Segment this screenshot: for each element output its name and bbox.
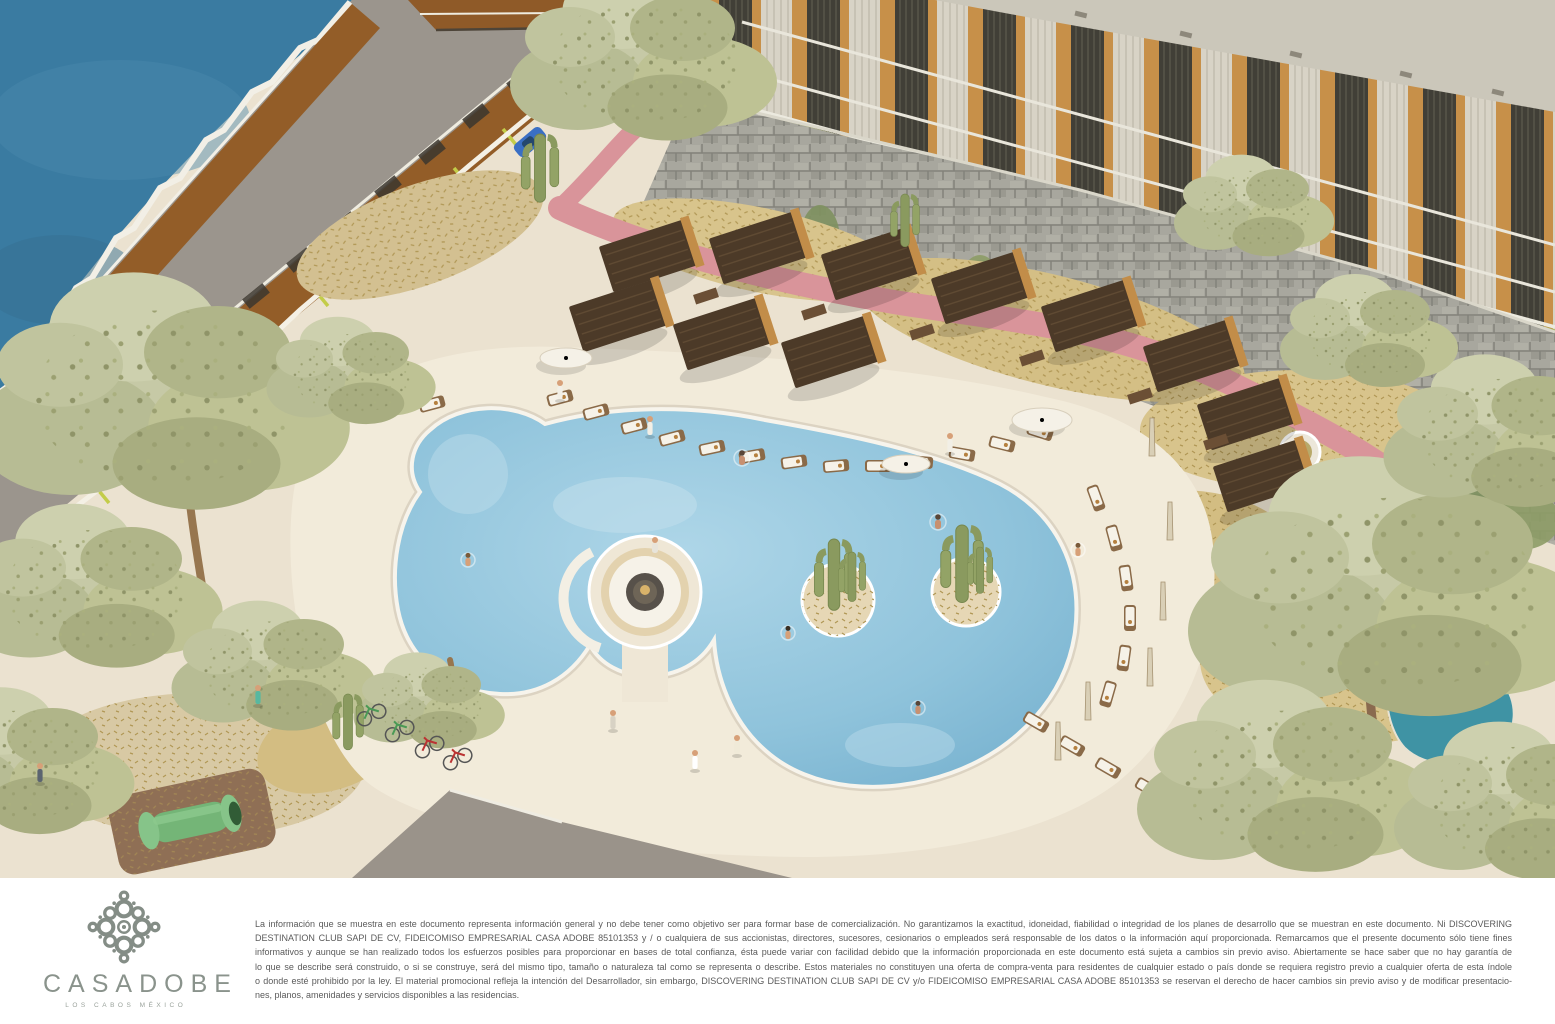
spa-circle (428, 434, 508, 514)
resort-rendering (0, 0, 1555, 878)
disclaimer-line: nes, planos, amenidades y servicios disp… (255, 988, 1512, 1002)
page: CASADOBE LOS CABOS MÉXICO La información… (0, 0, 1555, 1024)
swim-ledge (553, 477, 697, 533)
brand-logo: CASADOBE LOS CABOS MÉXICO (36, 886, 212, 1009)
disclaimer-line: DESTINATION CLUB SAPI DE CV, FIDEICOMISO… (255, 931, 1512, 945)
brand-wordmark: CASADOBE (36, 970, 212, 999)
disclaimer-line: La información que se muestra en este do… (255, 917, 1512, 931)
legal-disclaimer: La información que se muestra en este do… (255, 917, 1512, 1002)
footer: CASADOBE LOS CABOS MÉXICO La información… (0, 878, 1555, 1024)
brand-tagline: LOS CABOS MÉXICO (36, 1002, 212, 1009)
disclaimer-line: o donde esté prohibido por la ley. El ma… (255, 974, 1512, 988)
disclaimer-line: lo que se describe será construido, o si… (255, 960, 1512, 974)
casadobe-rosette-icon (81, 886, 167, 968)
disclaimer-line: informativos y aunque se han realizado t… (255, 945, 1512, 959)
